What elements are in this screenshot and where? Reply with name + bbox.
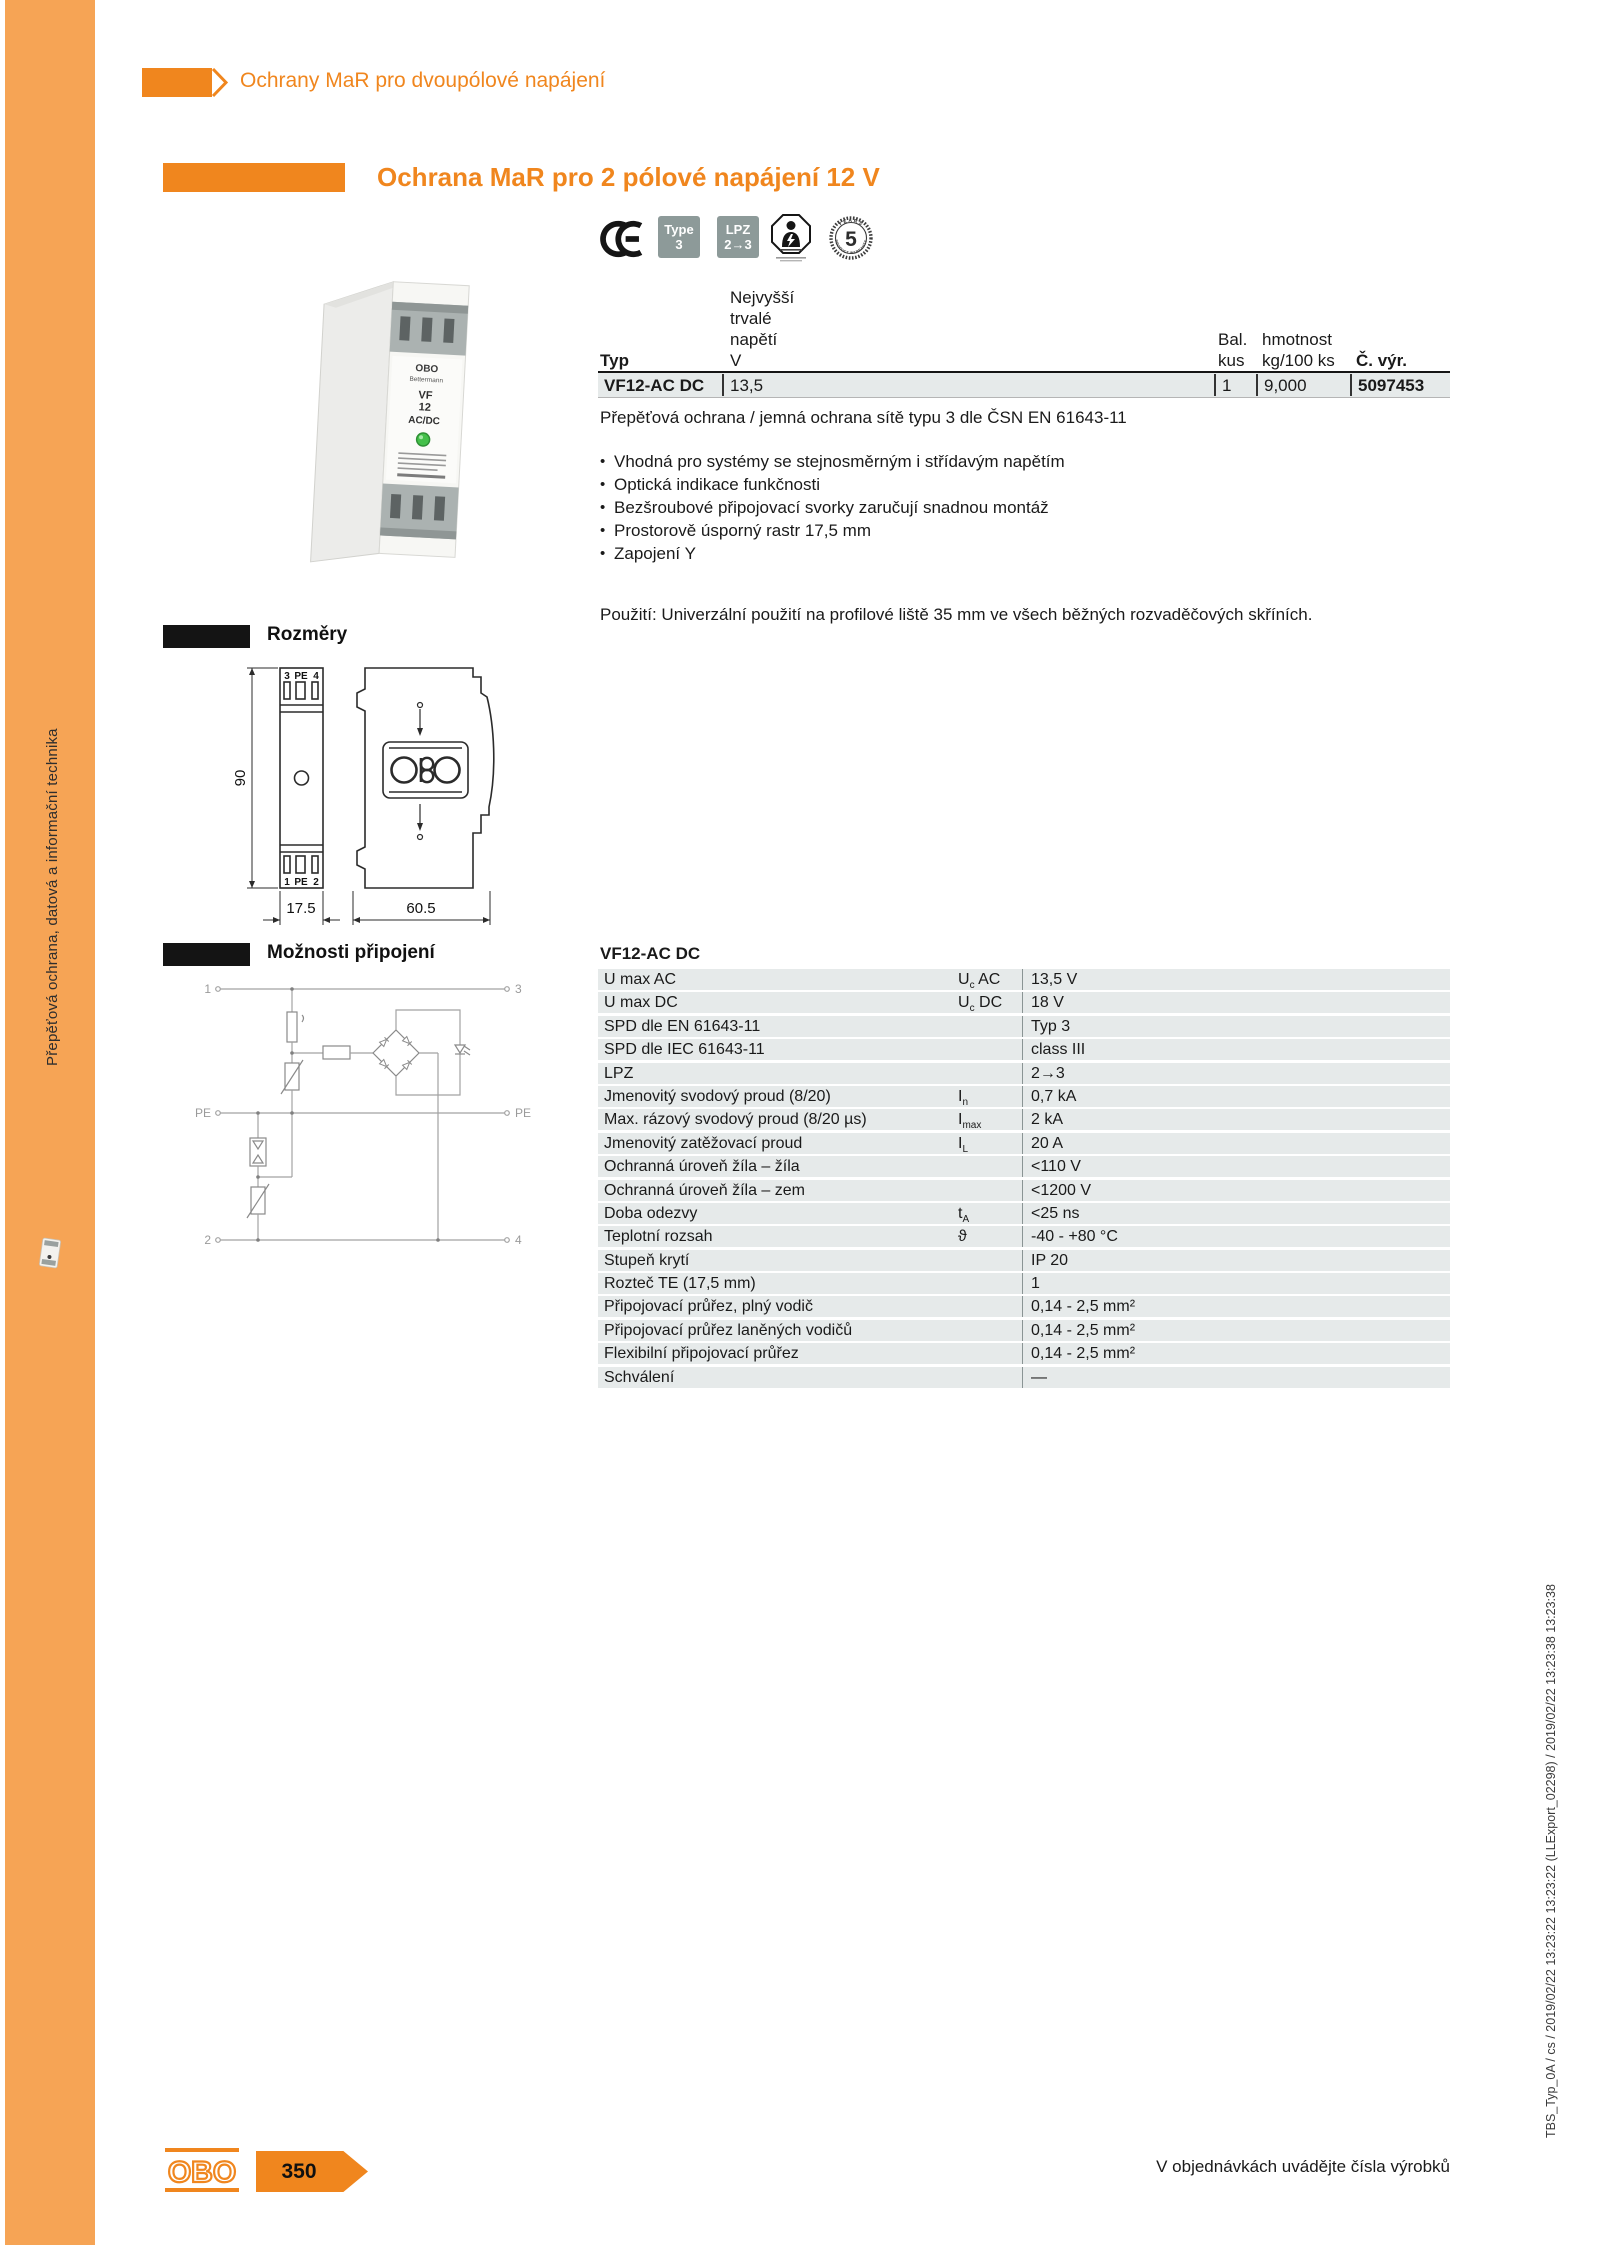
obo-logo: OBO (163, 2146, 243, 2194)
section-marker (163, 943, 250, 966)
svg-text:OBO: OBO (168, 2156, 236, 2189)
spec-label: Stupeň krytí (604, 1250, 689, 1271)
spec-value: 13,5 V (1031, 969, 1077, 990)
spec-label: Připojovací průřez laněných vodičů (604, 1320, 852, 1341)
spec-divider (1022, 1156, 1023, 1177)
spec-label: Doba odezvy (604, 1203, 697, 1224)
spec-value: class III (1031, 1039, 1085, 1060)
spec-row: Schválení — (598, 1367, 1450, 1388)
spec-label: SPD dle EN 61643-11 (604, 1016, 760, 1037)
spec-label: Rozteč TE (17,5 mm) (604, 1273, 756, 1294)
category-arrow-icon (142, 67, 232, 99)
device-brand: OBO (415, 363, 439, 375)
spec-label: Ochranná úroveň žíla – zem (604, 1180, 805, 1201)
spec-divider (1022, 1296, 1023, 1317)
terminal-label-pe-bottom: PE (294, 877, 308, 888)
spec-divider (1022, 1343, 1023, 1364)
spec-label: Jmenovitý svodový proud (8/20) (604, 1086, 831, 1107)
spec-row: SPD dle EN 61643-11 Typ 3 (598, 1016, 1450, 1037)
product-artno: 5097453 (1358, 375, 1424, 396)
spec-row: Ochranná úroveň žíla – žíla <110 V (598, 1156, 1450, 1177)
footer-note: V objednávkách uvádějte čísla výrobků (1000, 2157, 1450, 2177)
spec-divider (1022, 1016, 1023, 1037)
spec-label: U max AC (604, 969, 676, 990)
cell-divider (1256, 374, 1258, 396)
product-weight: 9,000 (1264, 375, 1307, 396)
spec-row: Jmenovitý zatěžovací proud IL 20 A (598, 1133, 1450, 1154)
lpz-badge-line2: 2→3 (724, 237, 751, 252)
spec-value: 20 A (1031, 1133, 1063, 1154)
dimensions-heading: Rozměry (267, 624, 347, 646)
spec-divider (1022, 1086, 1023, 1107)
type3-badge-line2: 3 (675, 237, 682, 252)
spec-label: LPZ (604, 1063, 633, 1084)
spec-divider (1022, 1250, 1023, 1271)
seal-number: 5 (845, 228, 857, 251)
spec-divider (1022, 1133, 1023, 1154)
spec-divider (1022, 1203, 1023, 1224)
spec-value: <25 ns (1031, 1203, 1079, 1224)
spec-value: 2 kA (1031, 1109, 1063, 1130)
device-model-line3: AC/DC (408, 415, 440, 428)
spec-value: IP 20 (1031, 1250, 1068, 1271)
spec-value: 1 (1031, 1273, 1040, 1294)
product-bal: 1 (1222, 375, 1231, 396)
product-row: VF12-AC DC 13,5 1 9,000 5097453 (598, 371, 1450, 398)
product-photo: OBO Bettermann VF 12 AC/DC (300, 266, 488, 578)
col-header-voltage-line: Nejvyšší (730, 287, 794, 308)
spec-divider (1022, 969, 1023, 990)
feature-list: Vhodná pro systémy se stejnosměrným i st… (600, 450, 1065, 565)
spec-value: 0,14 - 2,5 mm² (1031, 1296, 1135, 1317)
type3-badge: Type 3 (658, 216, 700, 258)
feature-item: Vhodná pro systémy se stejnosměrným i st… (600, 450, 1065, 473)
catalog-page: Přepěťová ochrana, datová a informační t… (0, 0, 1600, 2245)
col-header-voltage-line: napětí (730, 329, 794, 350)
col-header-weight1: hmotnost (1262, 329, 1332, 350)
spec-label: Teplotní rozsah (604, 1226, 713, 1247)
circuit-terminal-1: 1 (204, 982, 211, 996)
warranty-seal-icon: YEARS PRODUCT WARRANTY 5 (828, 215, 874, 261)
installer-icon (768, 213, 814, 263)
spec-label: U max DC (604, 992, 678, 1013)
lpz-badge: LPZ 2→3 (717, 216, 759, 258)
col-header-weight2: kg/100 ks (1262, 350, 1335, 371)
cell-divider (722, 374, 724, 396)
spec-row: Stupeň krytí IP 20 (598, 1250, 1450, 1271)
page-number-badge: 350 (256, 2151, 368, 2192)
spec-row: Teplotní rozsah ϑ -40 - +80 °C (598, 1226, 1450, 1247)
circuit-terminal-3: 3 (515, 982, 522, 996)
spec-label: Připojovací průřez, plný vodič (604, 1296, 813, 1317)
cell-divider (1214, 374, 1216, 396)
cell-divider (1350, 374, 1352, 396)
spec-label: Flexibilní připojovací průřez (604, 1343, 799, 1364)
spec-row: Doba odezvy tA <25 ns (598, 1203, 1450, 1224)
page-title: Ochrana MaR pro 2 pólové napájení 12 V (377, 162, 880, 193)
col-header-typ: Typ (600, 350, 629, 371)
spec-label: Jmenovitý zatěžovací proud (604, 1133, 802, 1154)
spec-row: SPD dle IEC 61643-11 class III (598, 1039, 1450, 1060)
col-header-voltage-line: V (730, 350, 794, 371)
spec-value: 0,14 - 2,5 mm² (1031, 1320, 1135, 1341)
spec-label: Ochranná úroveň žíla – žíla (604, 1156, 800, 1177)
terminal-label-2: 2 (313, 877, 319, 888)
spec-row: Připojovací průřez, plný vodič 0,14 - 2,… (598, 1296, 1450, 1317)
page-number: 350 (281, 2160, 316, 2184)
dim-width: 17.5 (286, 900, 315, 917)
spec-row: U max DC Uc DC 18 V (598, 992, 1450, 1013)
connection-heading: Možnosti připojení (267, 942, 435, 964)
spec-label: SPD dle IEC 61643-11 (604, 1039, 765, 1060)
spec-value: Typ 3 (1031, 1016, 1070, 1037)
title-marker-bar (163, 163, 345, 192)
col-header-bal2: kus (1218, 350, 1244, 371)
feature-item: Prostorově úsporný rastr 17,5 mm (600, 519, 1065, 542)
dim-depth: 60.5 (406, 900, 435, 917)
spec-value: -40 - +80 °C (1031, 1226, 1118, 1247)
print-info: TBS_Typ_0A / cs / 2019/02/22 13:23:22 13… (1544, 1584, 1558, 2138)
product-typ: VF12-AC DC (604, 375, 704, 396)
spec-divider (1022, 1273, 1023, 1294)
spec-value: 0,7 kA (1031, 1086, 1076, 1107)
type3-badge-line1: Type (664, 222, 693, 237)
spec-value: 2→3 (1031, 1063, 1065, 1084)
feature-item: Bezšroubové připojovací svorky zaručují … (600, 496, 1065, 519)
spec-row: U max AC Uc AC 13,5 V (598, 969, 1450, 990)
spec-value: 18 V (1031, 992, 1064, 1013)
circuit-terminal-4: 4 (515, 1233, 522, 1247)
spec-row: Ochranná úroveň žíla – zem <1200 V (598, 1180, 1450, 1201)
circuit-terminal-pe-left: PE (195, 1106, 211, 1120)
spec-label: Max. rázový svodový proud (8/20 µs) (604, 1109, 867, 1130)
circuit-terminal-2: 2 (204, 1233, 211, 1247)
feature-item: Optická indikace funkčnosti (600, 473, 1065, 496)
feature-item: Zapojení Y (600, 542, 1065, 565)
device-led-indicator (416, 433, 430, 447)
spec-divider (1022, 992, 1023, 1013)
spec-row: Flexibilní připojovací průřez 0,14 - 2,5… (598, 1343, 1450, 1364)
spec-divider (1022, 1109, 1023, 1130)
spec-value: 0,14 - 2,5 mm² (1031, 1343, 1135, 1364)
product-voltage: 13,5 (730, 375, 763, 396)
terminal-label-3: 3 (284, 671, 290, 682)
terminal-label-4: 4 (313, 671, 319, 682)
spec-row: Připojovací průřez laněných vodičů 0,14 … (598, 1320, 1450, 1341)
specs-table: U max AC Uc AC 13,5 V U max DC Uc DC 18 … (598, 969, 1450, 1390)
category-title: Ochrany MaR pro dvoupólové napájení (240, 69, 605, 93)
lpz-badge-line1: LPZ (726, 222, 751, 237)
spec-value: — (1031, 1367, 1047, 1388)
col-header-voltage: NejvyššítrvalénapětíV (730, 287, 794, 371)
spec-row: Jmenovitý svodový proud (8/20) In 0,7 kA (598, 1086, 1450, 1107)
description-intro: Přepěťová ochrana / jemná ochrana sítě t… (600, 406, 1127, 429)
spec-divider (1022, 1039, 1023, 1060)
circuit-diagram: 1 3 PE PE 2 4 (173, 973, 545, 1269)
ce-mark-icon (592, 219, 644, 259)
sidebar (5, 0, 95, 2245)
device-model-line2: 12 (418, 401, 431, 414)
section-marker (163, 625, 250, 648)
spec-divider (1022, 1367, 1023, 1388)
dim-height: 90 (232, 770, 249, 787)
terminal-label-1: 1 (284, 877, 290, 888)
spec-divider (1022, 1226, 1023, 1247)
spec-value: <1200 V (1031, 1180, 1091, 1201)
col-header-artno: Č. výr. (1356, 350, 1407, 371)
spec-divider (1022, 1320, 1023, 1341)
terminal-label-pe-top: PE (294, 671, 308, 682)
spec-divider (1022, 1180, 1023, 1201)
device-model-line1: VF (418, 389, 433, 402)
spec-divider (1022, 1063, 1023, 1084)
sidebar-chapter-label: Přepěťová ochrana, datová a informační t… (44, 728, 61, 1066)
usage-note: Použití: Univerzální použití na profilov… (600, 603, 1312, 626)
sidebar-product-thumbnail-icon (38, 1235, 64, 1271)
col-header-bal1: Bal. (1218, 329, 1247, 350)
spec-row: LPZ 2→3 (598, 1063, 1450, 1084)
spec-label: Schválení (604, 1367, 674, 1388)
spec-value: <110 V (1031, 1156, 1081, 1177)
dimension-drawing: 90 17.5 60.5 3 PE 4 1 PE 2 (225, 655, 527, 957)
spec-row: Rozteč TE (17,5 mm) 1 (598, 1273, 1450, 1294)
circuit-terminal-pe-right: PE (515, 1106, 531, 1120)
spec-row: Max. rázový svodový proud (8/20 µs) Imax… (598, 1109, 1450, 1130)
col-header-voltage-line: trvalé (730, 308, 794, 329)
specs-heading: VF12-AC DC (600, 944, 700, 964)
